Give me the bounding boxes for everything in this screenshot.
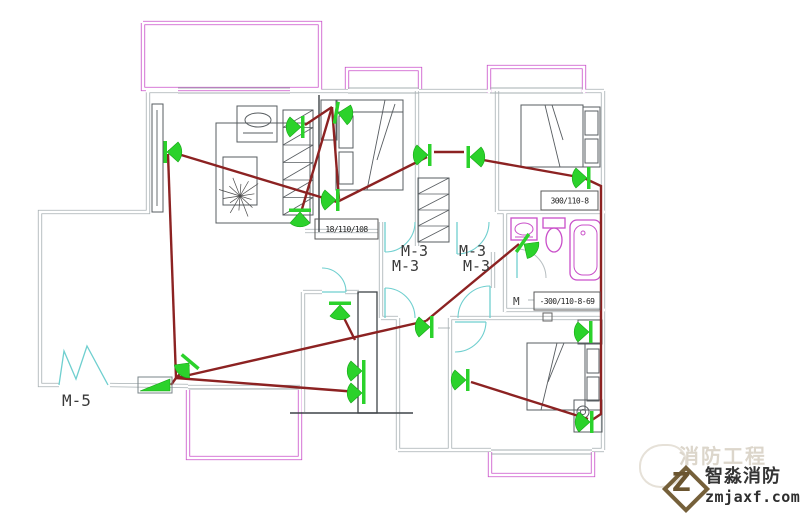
wall-core xyxy=(40,92,148,385)
door-code-label: M-3 xyxy=(463,257,490,275)
speaker-bar xyxy=(362,382,366,404)
balcony-wall xyxy=(188,390,300,458)
plant-leaf xyxy=(240,196,248,216)
watermark-site: zmjaxf.com xyxy=(705,488,800,506)
plant-leaf xyxy=(240,181,249,196)
speaker-cone xyxy=(286,117,301,137)
wardrobe-hatch xyxy=(418,226,449,242)
bathtub-inner xyxy=(574,225,597,275)
furniture xyxy=(152,104,163,212)
furniture xyxy=(587,377,599,401)
alarm-speaker-icon xyxy=(467,146,485,168)
speaker-bar xyxy=(301,116,305,138)
balcony-core xyxy=(490,452,593,475)
door-swing-arc xyxy=(322,268,346,292)
alarm-speaker-icon xyxy=(451,369,469,391)
furniture xyxy=(585,111,598,135)
furniture-line xyxy=(541,343,557,410)
shaft xyxy=(358,292,377,413)
door-swing-arc xyxy=(455,322,486,352)
bathtub xyxy=(570,220,601,280)
dimension-text: -300/110-8-69 xyxy=(540,297,596,306)
dimension-text: 300/110-8 xyxy=(551,197,590,206)
logo-z-letter: Z xyxy=(672,470,691,496)
furniture-line xyxy=(545,105,560,167)
toilet-bowl xyxy=(546,228,562,252)
furniture xyxy=(216,123,310,223)
layer-walls-gray xyxy=(40,91,605,450)
wire xyxy=(472,158,584,178)
balcony-wall xyxy=(347,69,420,89)
dimension-text: 18/110/108 xyxy=(325,225,368,234)
furniture xyxy=(585,139,598,163)
speaker-bar xyxy=(164,141,168,163)
speaker-bar xyxy=(430,316,434,338)
watermark-text: 智淼消防 zmjaxf.com xyxy=(705,462,800,506)
plant-leaf xyxy=(230,196,240,213)
speaker-bar xyxy=(590,411,594,433)
door-code-label: M xyxy=(513,295,520,308)
wardrobe-hatch xyxy=(283,145,313,163)
speaker-bar xyxy=(466,369,470,391)
alarm-speaker-icon xyxy=(333,102,355,127)
speaker-cone xyxy=(290,212,310,227)
toilet-tank xyxy=(543,218,565,228)
speaker-bar xyxy=(467,146,471,168)
screenshot-root: 18/110/108300/110-8-300/110-8-69M-3M-3M-… xyxy=(0,0,809,521)
wardrobe-hatch xyxy=(283,163,313,181)
speaker-bar xyxy=(589,321,593,343)
alarm-speaker-icon xyxy=(574,321,592,343)
wall xyxy=(40,92,148,385)
speaker-bar xyxy=(336,189,340,211)
alarm-speaker-icon xyxy=(572,167,590,189)
balcony-wall xyxy=(143,23,320,89)
speaker-bar xyxy=(428,144,432,166)
speaker-cone xyxy=(451,370,466,390)
speaker-cone xyxy=(347,361,362,381)
balcony-wall xyxy=(490,452,593,475)
balcony-core xyxy=(143,23,320,89)
alarm-speaker-icon xyxy=(329,302,351,320)
door-code-label: M-5 xyxy=(62,391,91,410)
wardrobe-hatch xyxy=(418,178,449,194)
layer-bath-fixtures xyxy=(511,218,601,280)
speaker-cone xyxy=(572,168,587,188)
alarm-speaker-icon xyxy=(415,316,433,338)
door-leaf xyxy=(59,346,108,385)
sink-bowl xyxy=(515,223,533,235)
balcony-core xyxy=(188,390,300,458)
furniture xyxy=(339,152,353,184)
wardrobe-hatch xyxy=(283,198,313,216)
balcony-wall xyxy=(489,67,584,93)
plant-leaf xyxy=(233,178,240,196)
tub-drain xyxy=(581,231,585,235)
door-swing-arc xyxy=(385,288,415,318)
door-code-label: M-3 xyxy=(392,257,419,275)
speaker-cone xyxy=(413,145,428,165)
layer-window-lines xyxy=(178,88,592,454)
speaker-cone xyxy=(321,190,336,210)
furniture xyxy=(587,349,599,373)
wardrobe-hatch xyxy=(418,194,449,210)
furniture xyxy=(521,105,583,167)
basin-ellipse xyxy=(245,113,271,127)
watermark-brand: 智淼消防 xyxy=(705,462,800,488)
watermark-logo: Z xyxy=(663,464,703,508)
alarm-speaker-icon xyxy=(347,382,365,404)
plant-leaf xyxy=(240,184,258,196)
speaker-cone xyxy=(347,383,362,403)
speaker-cone xyxy=(470,147,485,167)
alarm-speaker-icon xyxy=(347,360,365,382)
wire xyxy=(471,382,588,419)
alarm-speaker-icon xyxy=(321,189,339,211)
plant-leaf xyxy=(223,196,240,199)
alarm-speaker-icon xyxy=(413,144,431,166)
watermark: 消防工程 Z 智淼消防 zmjaxf.com xyxy=(645,438,807,518)
furniture-line xyxy=(367,100,385,190)
speaker-cone xyxy=(330,305,350,320)
alarm-speaker-icon xyxy=(286,116,304,138)
speaker-bar xyxy=(289,209,311,213)
speaker-bar xyxy=(362,360,366,382)
wire xyxy=(337,157,427,202)
speaker-bar xyxy=(329,302,351,306)
layer-wiring-red xyxy=(168,107,601,420)
balcony-core xyxy=(347,69,420,89)
wardrobe-hatch xyxy=(418,210,449,226)
furniture xyxy=(583,107,600,167)
layer-devices-green xyxy=(138,102,594,433)
balcony-core xyxy=(489,67,584,93)
wire xyxy=(168,154,176,378)
alarm-speaker-icon xyxy=(289,209,311,227)
alarm-speaker-icon xyxy=(164,141,182,163)
speaker-bar xyxy=(587,167,591,189)
speaker-cone xyxy=(574,322,589,342)
wall-core xyxy=(110,385,188,386)
furniture-line xyxy=(552,105,563,140)
furniture xyxy=(237,106,277,142)
